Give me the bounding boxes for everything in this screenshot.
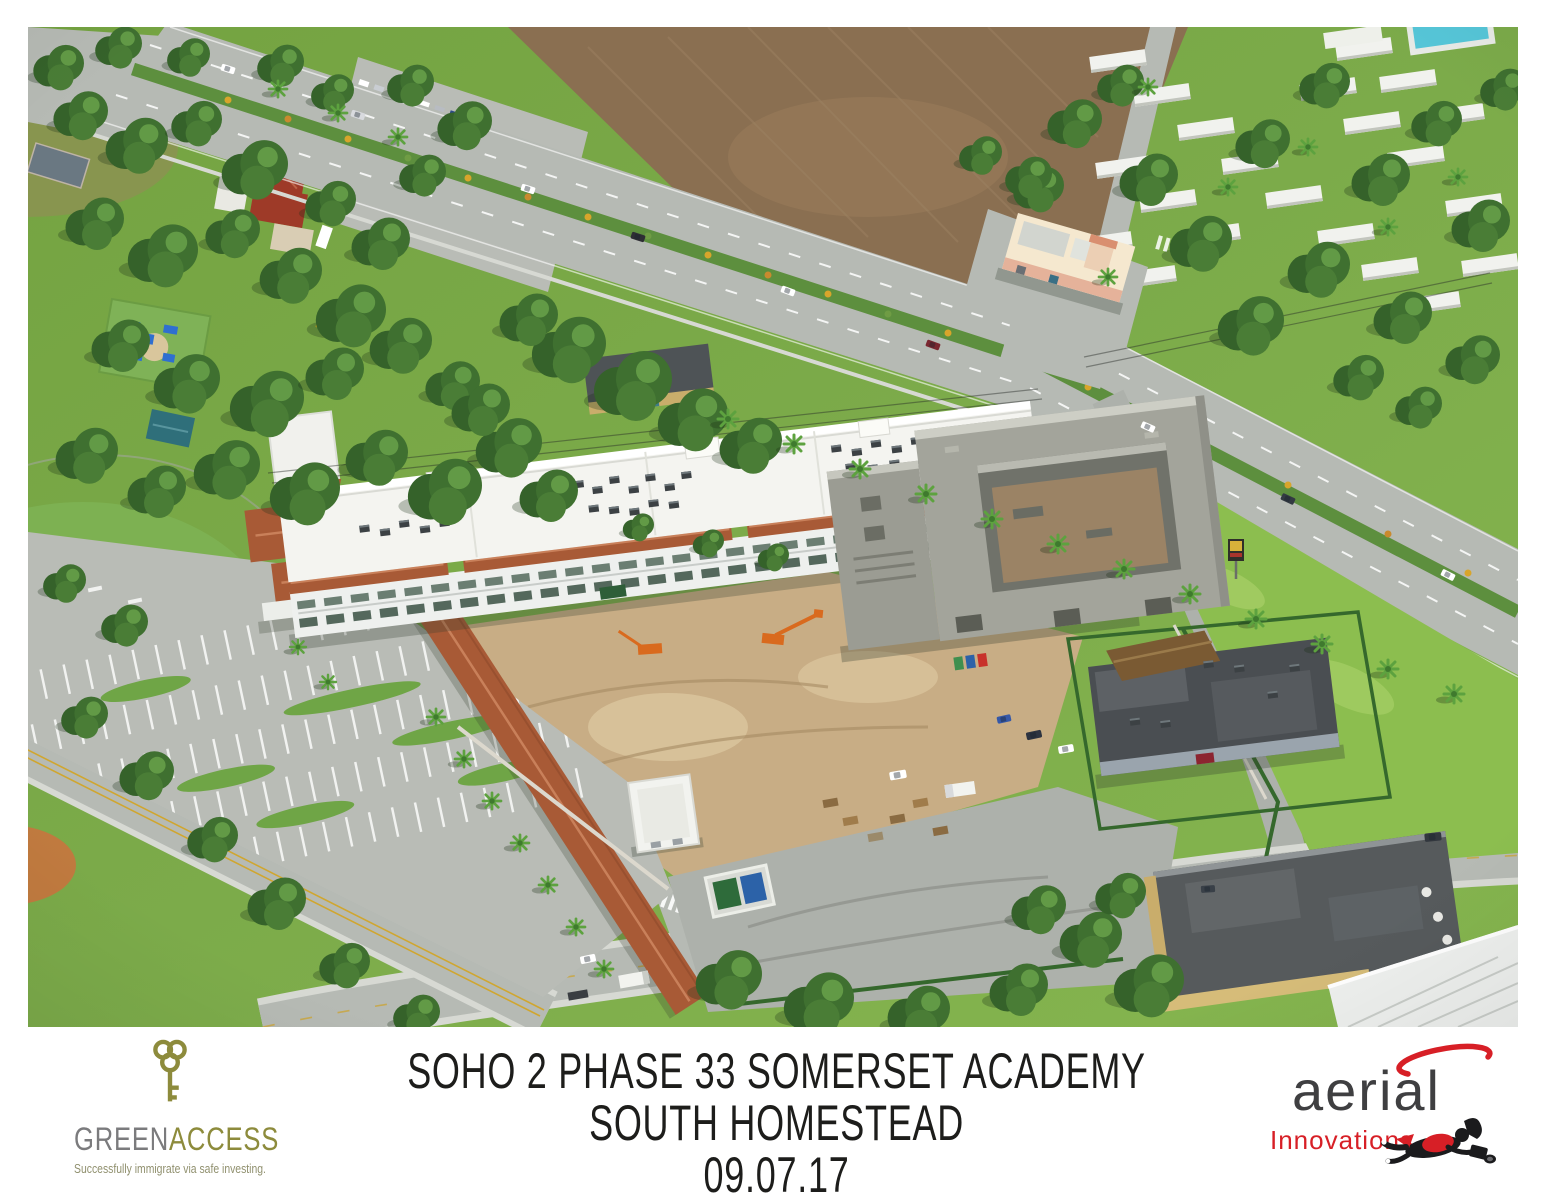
caption-strip: GREENACCESS Successfully immigrate via s… bbox=[0, 1027, 1553, 1200]
vignette-overlay bbox=[28, 27, 1518, 1027]
flying-photographer-icon bbox=[1378, 1113, 1513, 1183]
aerial-innovations-logo: aerial Innovations bbox=[1258, 1039, 1538, 1199]
caption-title-line2: SOUTH HOMESTEAD bbox=[217, 1097, 1335, 1149]
aerial-photo-illustration bbox=[28, 27, 1518, 1027]
aerial-photograph bbox=[28, 27, 1518, 1027]
caption-title-line1: SOHO 2 PHASE 33 SOMERSET ACADEMY bbox=[217, 1045, 1335, 1097]
caption-date: 09.07.17 bbox=[217, 1149, 1335, 1201]
aerial-word: aerial bbox=[1292, 1063, 1441, 1119]
